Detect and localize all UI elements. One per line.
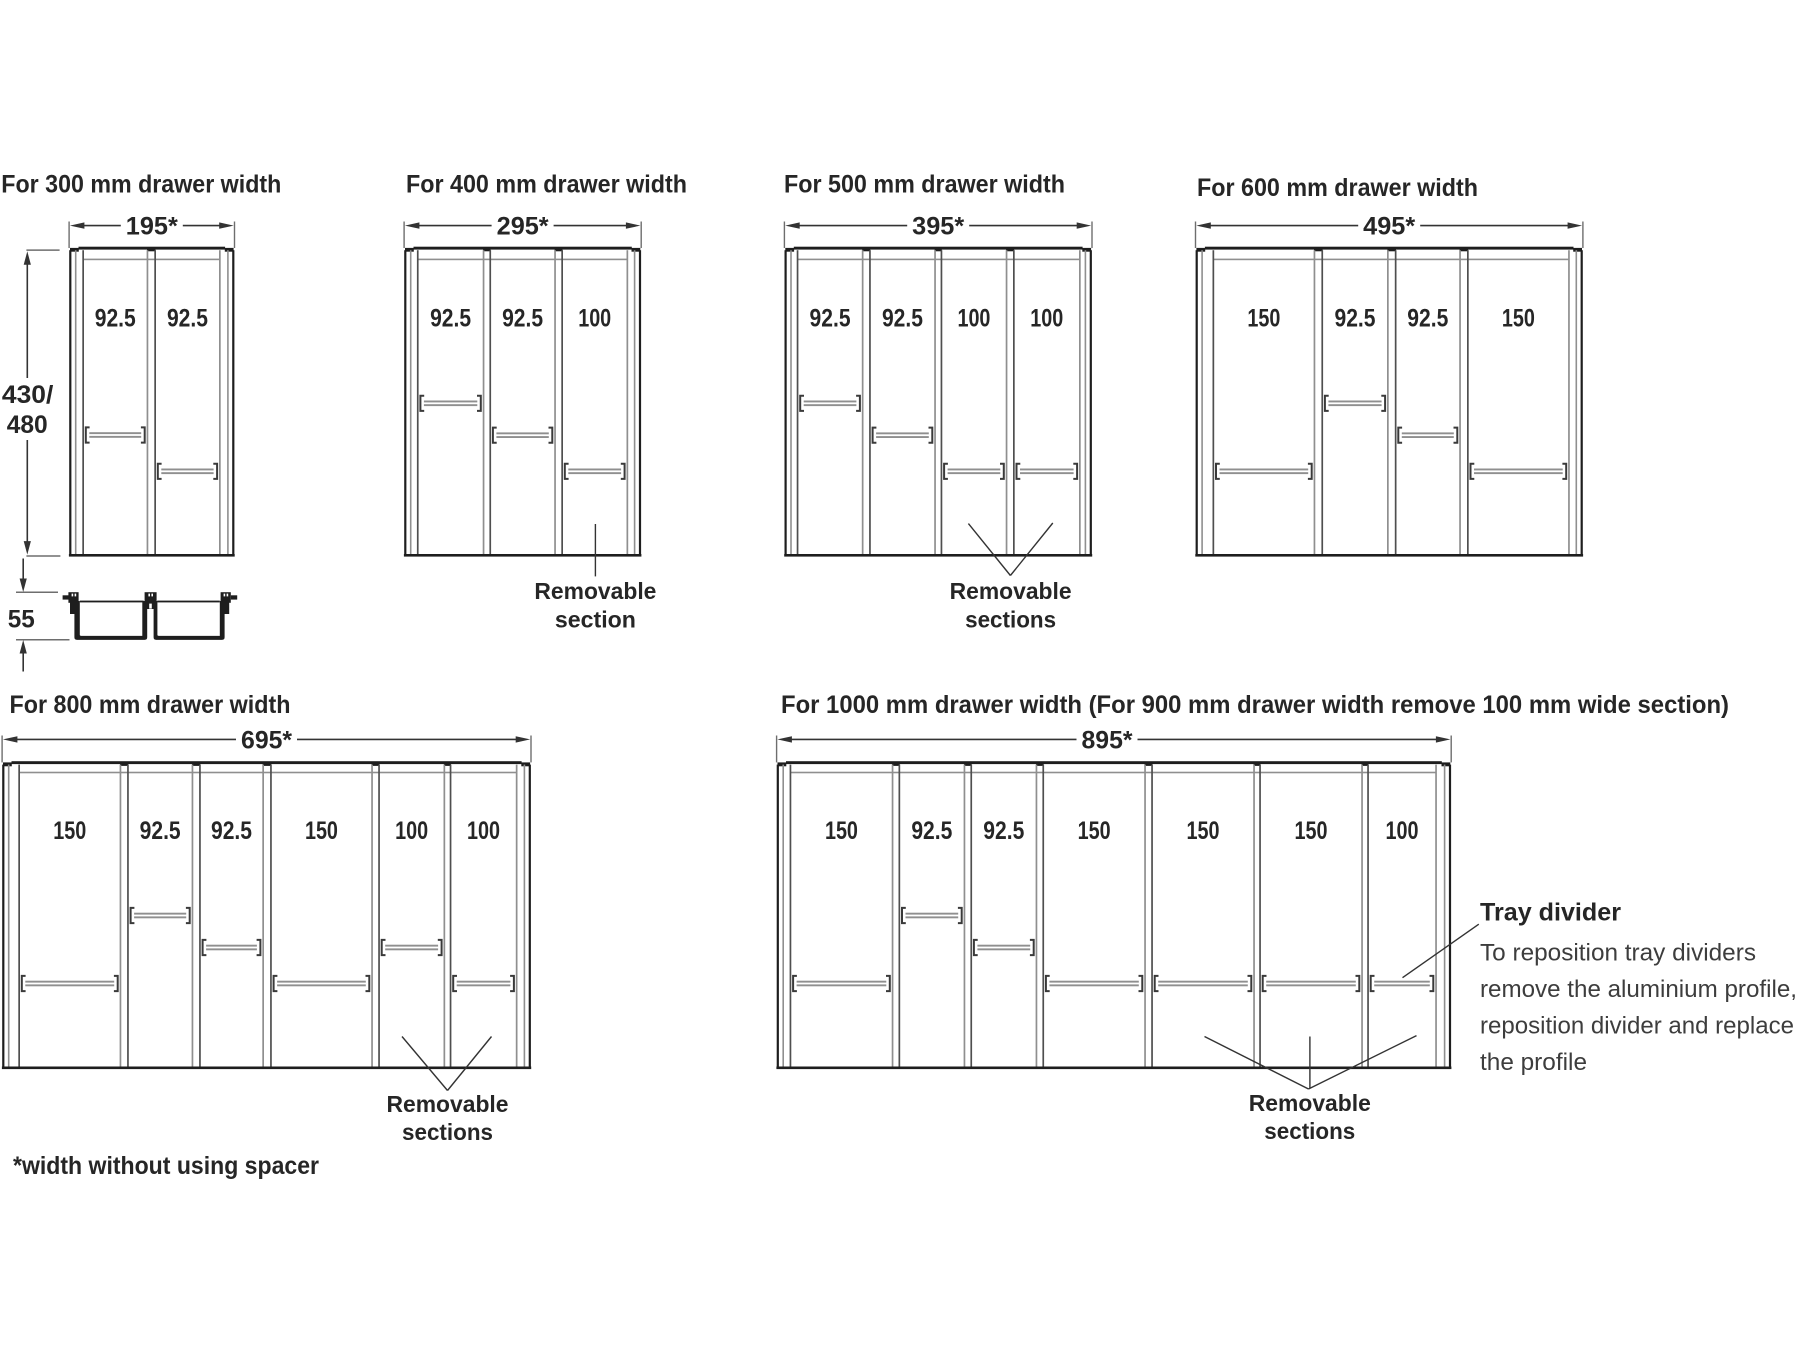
svg-text:895*: 895*	[1082, 727, 1133, 755]
svg-text:150: 150	[825, 817, 858, 845]
svg-text:92.5: 92.5	[140, 817, 181, 845]
svg-text:sections: sections	[965, 607, 1056, 633]
svg-text:92.5: 92.5	[911, 817, 952, 845]
svg-text:92.5: 92.5	[1335, 305, 1376, 333]
svg-text:92.5: 92.5	[502, 305, 543, 333]
svg-text:Tray divider: Tray divider	[1480, 899, 1621, 927]
svg-text:150: 150	[53, 817, 86, 845]
svg-text:Removable: Removable	[534, 578, 656, 604]
svg-text:150: 150	[1295, 817, 1328, 845]
svg-text:To reposition tray dividers: To reposition tray dividers	[1480, 940, 1756, 967]
svg-text:92.5: 92.5	[211, 817, 252, 845]
svg-text:100: 100	[1030, 305, 1063, 333]
svg-text:Removable: Removable	[1249, 1090, 1371, 1116]
svg-text:150: 150	[305, 817, 338, 845]
svg-text:430/: 430/	[2, 381, 53, 409]
svg-text:For 800 mm drawer width: For 800 mm drawer width	[10, 691, 291, 719]
svg-text:150: 150	[1247, 305, 1280, 333]
svg-text:55: 55	[8, 606, 35, 634]
svg-text:92.5: 92.5	[167, 305, 208, 333]
svg-text:480: 480	[7, 411, 48, 439]
svg-text:section: section	[555, 607, 636, 633]
svg-text:For 400 mm drawer width: For 400 mm drawer width	[406, 171, 687, 199]
svg-text:295*: 295*	[497, 213, 549, 241]
svg-text:Removable: Removable	[950, 578, 1072, 604]
svg-text:reposition divider and replace: reposition divider and replace	[1480, 1013, 1794, 1040]
svg-text:For 1000 mm drawer width (For: For 1000 mm drawer width (For 900 mm dra…	[781, 691, 1729, 719]
svg-text:92.5: 92.5	[1407, 305, 1448, 333]
svg-text:100: 100	[467, 817, 500, 845]
svg-text:For 300 mm drawer width: For 300 mm drawer width	[1, 171, 281, 199]
svg-text:100: 100	[395, 817, 428, 845]
svg-text:For 600 mm drawer width: For 600 mm drawer width	[1197, 174, 1478, 202]
svg-text:Removable: Removable	[387, 1091, 509, 1117]
svg-text:695*: 695*	[241, 727, 292, 755]
svg-text:100: 100	[957, 305, 990, 333]
svg-text:remove the aluminium profile,: remove the aluminium profile,	[1480, 976, 1797, 1003]
svg-text:the profile: the profile	[1480, 1049, 1587, 1076]
svg-text:92.5: 92.5	[430, 305, 471, 333]
svg-text:150: 150	[1502, 305, 1535, 333]
svg-text:sections: sections	[402, 1119, 493, 1145]
svg-text:150: 150	[1187, 817, 1220, 845]
svg-text:92.5: 92.5	[983, 817, 1024, 845]
svg-text:195*: 195*	[126, 213, 178, 241]
svg-text:92.5: 92.5	[95, 305, 136, 333]
svg-text:150: 150	[1078, 817, 1111, 845]
svg-text:sections: sections	[1264, 1118, 1355, 1144]
svg-text:395*: 395*	[912, 213, 964, 241]
svg-text:100: 100	[578, 305, 611, 333]
svg-text:For 500 mm drawer width: For 500 mm drawer width	[784, 171, 1065, 199]
svg-text:495*: 495*	[1363, 213, 1415, 241]
svg-text:100: 100	[1386, 817, 1419, 845]
svg-text:92.5: 92.5	[810, 305, 851, 333]
svg-text:*width without using spacer: *width without using spacer	[13, 1152, 319, 1180]
svg-text:92.5: 92.5	[882, 305, 923, 333]
